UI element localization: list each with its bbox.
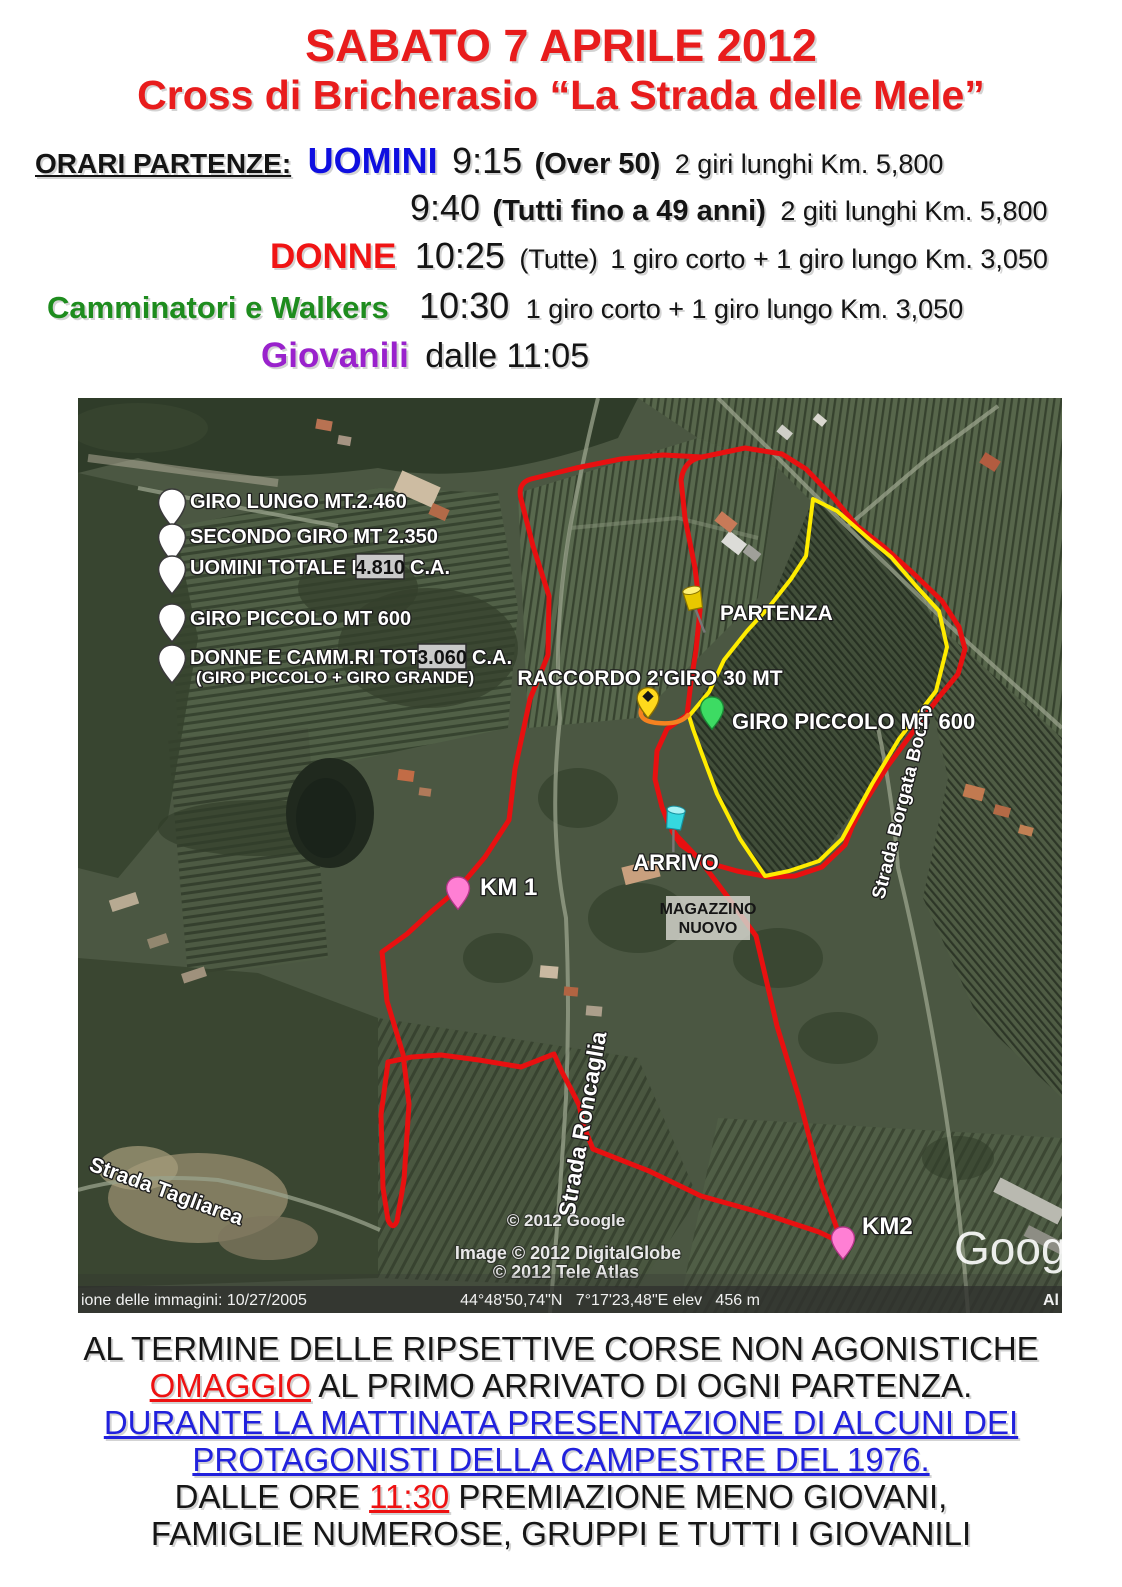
category-donne: DONNE bbox=[270, 237, 396, 276]
schedule-row-giovanili: Giovanili dalle 11:05 bbox=[261, 334, 589, 385]
footer-line-6: FAMIGLIE NUMEROSE, GRUPPI E TUTTI I GIOV… bbox=[0, 1515, 1122, 1552]
footer-line-5: DALLE ORE 11:30 PREMIAZIONE MENO GIOVANI… bbox=[0, 1478, 1122, 1515]
schedule-row-uomini-2: 9:40 (Tutti fino a 49 anni) 2 giti lungh… bbox=[410, 186, 1048, 238]
footer-presentazione: DURANTE LA MATTINATA PRESENTAZIONE DI AL… bbox=[104, 1404, 1018, 1441]
detail-donne: 1 giro corto + 1 giro lungo Km. 3,050 bbox=[610, 244, 1048, 274]
legend-giro-lungo: GIRO LUNGO MT.2.460 bbox=[190, 491, 407, 513]
detail-donne-paren: (Tutte) bbox=[519, 244, 598, 274]
footer-line-5-pre: DALLE ORE bbox=[175, 1478, 369, 1515]
legend-secondo-giro: SECONDO GIRO MT 2.350 bbox=[190, 526, 438, 548]
footer-omaggio: OMAGGIO bbox=[150, 1367, 311, 1404]
statusbar-fade bbox=[78, 1274, 1062, 1286]
raccordo-label: RACCORDO 2'GIRO 30 MT bbox=[517, 667, 782, 690]
time-camminatori: 10:30 bbox=[419, 285, 509, 326]
footer-line-1: AL TERMINE DELLE RIPSETTIVE CORSE NON AG… bbox=[0, 1330, 1122, 1367]
detail-uomini-1: 2 giri lunghi Km. 5,800 bbox=[675, 149, 944, 179]
legend-uomini-totale-suffix: C.A. bbox=[410, 557, 450, 579]
schedule-row-uomini-1: ORARI PARTENZE: UOMINI 9:15 (Over 50) 2 … bbox=[35, 139, 943, 191]
legend-uomini-totale-value: 4.810 bbox=[355, 557, 405, 579]
category-camminatori: Camminatori e Walkers bbox=[47, 290, 389, 325]
schedule-heading: ORARI PARTENZE: bbox=[35, 148, 291, 179]
footer-protagonisti: PROTAGONISTI DELLA CAMPESTRE DEL 1976. bbox=[192, 1441, 929, 1478]
time-donne: 10:25 bbox=[415, 235, 505, 276]
google-watermark: Google bbox=[954, 1222, 1062, 1274]
km2-label: KM2 bbox=[862, 1213, 913, 1240]
arrivo-label: ARRIVO bbox=[633, 850, 719, 875]
magazzino-label-line1: MAGAZZINO bbox=[660, 901, 757, 918]
footer-line-5-post: PREMIAZIONE MENO GIOVANI, bbox=[449, 1478, 947, 1515]
partenza-label: PARTENZA bbox=[720, 602, 833, 625]
legend-donne-totale-suffix: C.A. bbox=[472, 647, 512, 669]
km1-label: KM 1 bbox=[480, 874, 537, 901]
magazzino-label-line2: NUOVO bbox=[679, 920, 738, 937]
page-subtitle: Cross di Bricherasio “La Strada delle Me… bbox=[0, 72, 1122, 119]
time-giovanili: dalle 11:05 bbox=[425, 337, 589, 375]
footer-line-2: OMAGGIO AL PRIMO ARRIVATO DI OGNI PARTEN… bbox=[0, 1367, 1122, 1404]
legend-giro-piccolo: GIRO PICCOLO MT 600 bbox=[190, 608, 411, 630]
category-giovanili: Giovanili bbox=[261, 336, 409, 375]
legend-donne-totale-sub: (GIRO PICCOLO + GIRO GRANDE) bbox=[196, 668, 474, 687]
giro-piccolo-label: GIRO PICCOLO MT 600 bbox=[732, 709, 975, 734]
category-uomini: UOMINI bbox=[308, 140, 438, 181]
footer-line-4: PROTAGONISTI DELLA CAMPESTRE DEL 1976. bbox=[0, 1441, 1122, 1478]
detail-uomini-2-bold: (Tutti fino a 49 anni) bbox=[493, 195, 766, 227]
credit-digitalglobe: Image © 2012 DigitalGlobe bbox=[455, 1243, 681, 1263]
time-uomini-2: 9:40 bbox=[410, 187, 480, 228]
time-uomini-1: 9:15 bbox=[452, 140, 522, 181]
schedule-row-camminatori: Camminatori e Walkers 10:30 1 giro corto… bbox=[47, 284, 963, 336]
map-statusbar: ione delle immagini: 10/27/2005 44°48'50… bbox=[78, 1274, 1062, 1313]
legend-donne-totale-value: 3.060 bbox=[417, 647, 467, 669]
footer-premiazione-time: 11:30 bbox=[369, 1478, 449, 1515]
course-satellite-map: Strada Tagliarea Strada Roncaglia Strada… bbox=[78, 398, 1062, 1313]
footer-line-3: DURANTE LA MATTINATA PRESENTAZIONE DI AL… bbox=[0, 1404, 1122, 1441]
detail-camminatori: 1 giro corto + 1 giro lungo Km. 3,050 bbox=[526, 294, 964, 324]
detail-uomini-2: 2 giti lunghi Km. 5,800 bbox=[780, 196, 1047, 226]
statusbar-image-date: ione delle immagini: 10/27/2005 bbox=[81, 1292, 307, 1309]
footer-line-2-rest: AL PRIMO ARRIVATO DI OGNI PARTENZA. bbox=[311, 1367, 972, 1404]
detail-uomini-1-bold: (Over 50) bbox=[535, 148, 661, 180]
credit-google: © 2012 Google bbox=[507, 1211, 625, 1230]
statusbar-coordinates: 44°48'50,74"N 7°17'23,48"E elev 456 m bbox=[460, 1292, 760, 1309]
page-title: SABATO 7 APRILE 2012 bbox=[0, 20, 1122, 72]
schedule-row-donne: DONNE 10:25 (Tutte) 1 giro corto + 1 gir… bbox=[270, 234, 1048, 286]
statusbar-right-clipped: Al bbox=[1043, 1292, 1059, 1309]
